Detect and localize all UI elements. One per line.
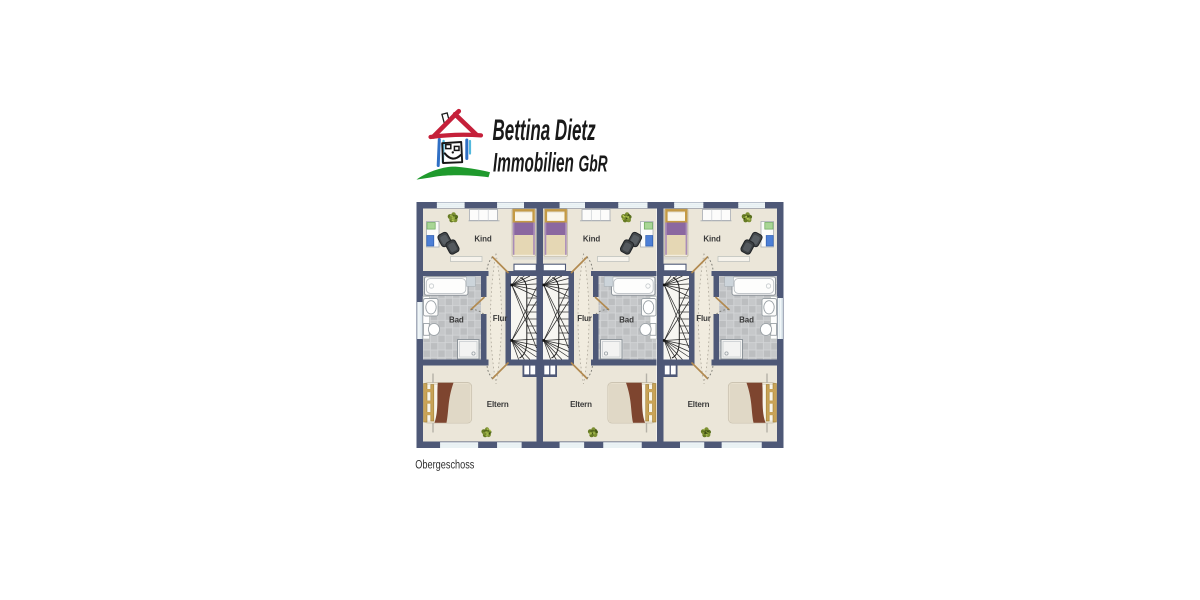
svg-text:Kind: Kind — [583, 234, 600, 243]
svg-text:Flur: Flur — [577, 314, 592, 323]
svg-text:Bad: Bad — [449, 316, 464, 325]
svg-text:Obergeschoss: Obergeschoss — [415, 458, 474, 472]
svg-text:GbR: GbR — [579, 152, 608, 177]
svg-text:Bad: Bad — [619, 316, 634, 325]
svg-text:Bettina Dietz: Bettina Dietz — [493, 114, 597, 147]
svg-text:Flur: Flur — [493, 314, 508, 323]
svg-text:Eltern: Eltern — [688, 400, 710, 409]
svg-text:Kind: Kind — [474, 234, 491, 243]
svg-text:Kind: Kind — [703, 234, 720, 243]
svg-text:Bad: Bad — [739, 316, 754, 325]
svg-text:Immobilien: Immobilien — [493, 147, 574, 178]
svg-text:Eltern: Eltern — [570, 400, 592, 409]
svg-text:Eltern: Eltern — [487, 400, 509, 409]
svg-text:Flur: Flur — [696, 314, 711, 323]
